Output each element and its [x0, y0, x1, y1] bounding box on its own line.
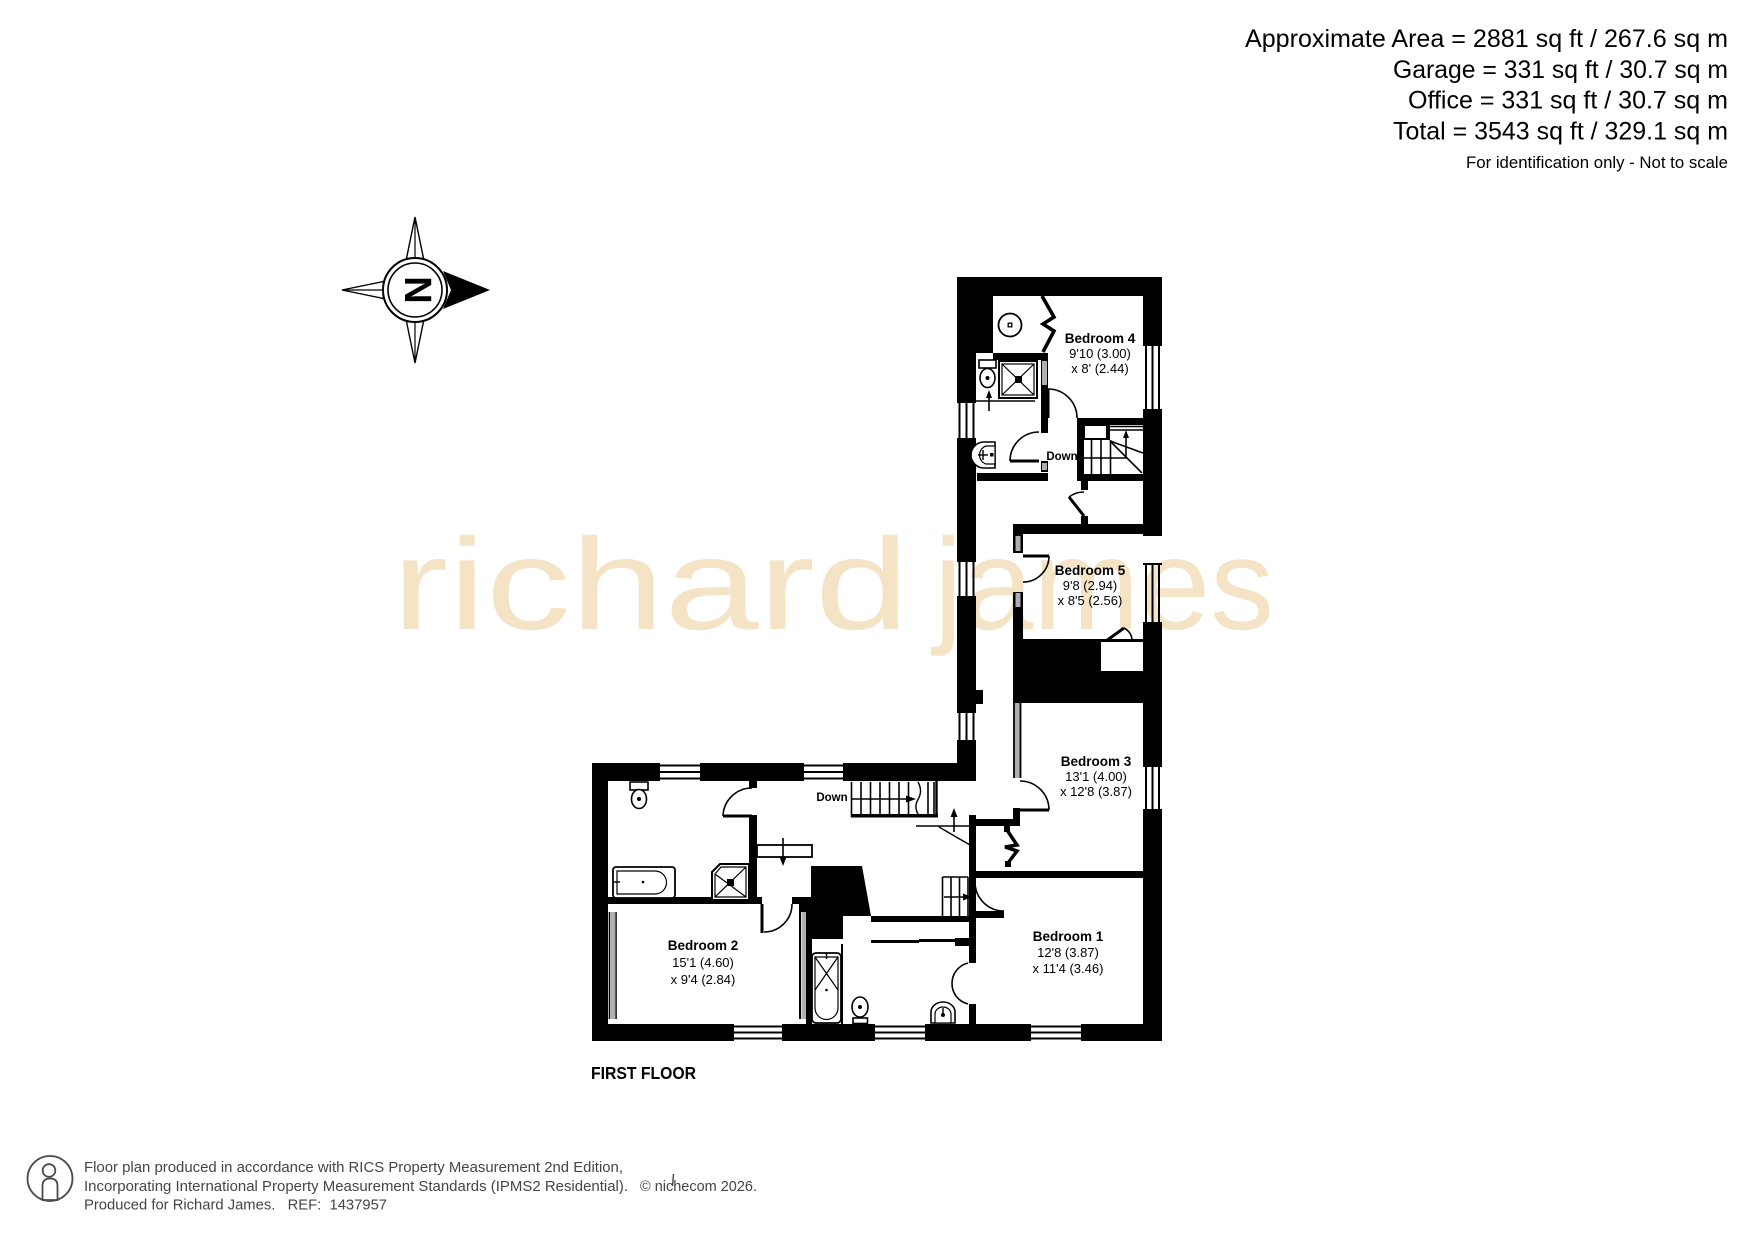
svg-text:Bedroom 3: Bedroom 3 [1061, 754, 1132, 769]
svg-text:Approximate Area = 2881 sq ft: Approximate Area = 2881 sq ft / 267.6 sq… [1245, 25, 1728, 53]
svg-text:Bedroom 2: Bedroom 2 [668, 938, 739, 953]
svg-text:Bedroom 4: Bedroom 4 [1065, 331, 1136, 346]
svg-text:N: N [396, 276, 438, 303]
svg-text:Produced for Richard James.: Produced for Richard James. REF: 1437957 [84, 1197, 387, 1214]
svg-text:x 12'8 (3.87): x 12'8 (3.87) [1060, 784, 1132, 799]
svg-text:x 9'4 (2.84): x 9'4 (2.84) [671, 972, 736, 987]
svg-text:9'10 (3.00): 9'10 (3.00) [1069, 346, 1131, 361]
svg-text:13'1 (4.00): 13'1 (4.00) [1065, 769, 1127, 784]
svg-text:x 11'4 (3.46): x 11'4 (3.46) [1033, 961, 1104, 976]
svg-text:15'1 (4.60): 15'1 (4.60) [672, 955, 734, 970]
svg-text:Floor plan produced in accorda: Floor plan produced in accordance with R… [84, 1159, 623, 1176]
svg-text:9'8 (2.94): 9'8 (2.94) [1063, 578, 1118, 593]
svg-text:FIRST FLOOR: FIRST FLOOR [591, 1063, 696, 1083]
svg-text:Down: Down [1046, 451, 1077, 463]
svg-text:Bedroom 5: Bedroom 5 [1055, 563, 1126, 578]
svg-text:Bedroom 1: Bedroom 1 [1033, 929, 1104, 944]
svg-text:Office = 331 sq ft / 30.7 sq m: Office = 331 sq ft / 30.7 sq m [1408, 87, 1728, 115]
svg-text:richard: richard [392, 511, 909, 657]
svg-text:Total = 3543 sq ft / 329.1 sq: Total = 3543 sq ft / 329.1 sq m [1393, 118, 1728, 146]
svg-text:Incorporating International Pr: Incorporating International Property Mea… [84, 1178, 628, 1195]
svg-text:x 8'5 (2.56): x 8'5 (2.56) [1058, 593, 1123, 608]
svg-text:For identification only - Not: For identification only - Not to scale [1466, 153, 1728, 172]
svg-text:© nichecom 2026.: © nichecom 2026. [640, 1178, 757, 1195]
svg-text:Garage = 331 sq ft / 30.7 sq m: Garage = 331 sq ft / 30.7 sq m [1393, 56, 1728, 84]
svg-text:12'8 (3.87): 12'8 (3.87) [1037, 945, 1099, 960]
svg-text:Down: Down [816, 792, 847, 804]
svg-text:x 8' (2.44): x 8' (2.44) [1071, 361, 1128, 376]
